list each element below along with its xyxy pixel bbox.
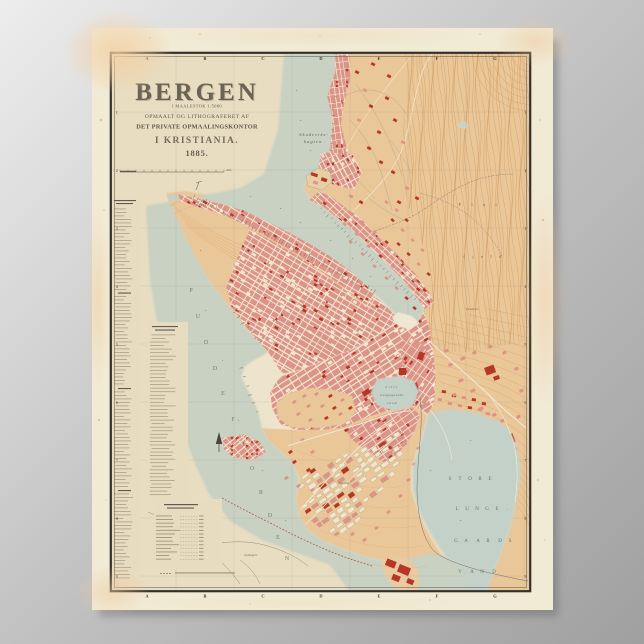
svg-text:5: 5 (525, 343, 527, 347)
svg-text:2: 2 (116, 169, 118, 173)
svg-text:4: 4 (116, 285, 118, 289)
svg-text:C: C (261, 594, 264, 599)
svg-text:D: D (319, 56, 322, 61)
svg-text:F: F (436, 594, 439, 599)
svg-text:G: G (493, 594, 497, 599)
svg-text:8: 8 (525, 517, 527, 521)
svg-text:F: F (436, 56, 439, 61)
svg-text:6: 6 (525, 401, 527, 405)
svg-text:4: 4 (525, 285, 527, 289)
svg-text:5: 5 (116, 343, 118, 347)
svg-text:E: E (378, 56, 381, 61)
svg-text:7: 7 (525, 459, 527, 463)
svg-text:E: E (378, 594, 381, 599)
svg-text:9: 9 (525, 575, 527, 579)
svg-text:2: 2 (525, 169, 527, 173)
svg-text:B: B (204, 56, 207, 61)
svg-text:C: C (261, 56, 264, 61)
svg-text:7: 7 (116, 459, 118, 463)
svg-text:B: B (204, 594, 207, 599)
svg-text:G: G (493, 56, 497, 61)
svg-text:3: 3 (525, 227, 527, 231)
svg-text:1: 1 (116, 111, 118, 115)
svg-text:3: 3 (116, 227, 118, 231)
svg-text:1: 1 (525, 111, 527, 115)
svg-text:D: D (319, 594, 322, 599)
svg-text:8: 8 (116, 517, 118, 521)
svg-text:9: 9 (116, 575, 118, 579)
svg-text:6: 6 (116, 401, 118, 405)
